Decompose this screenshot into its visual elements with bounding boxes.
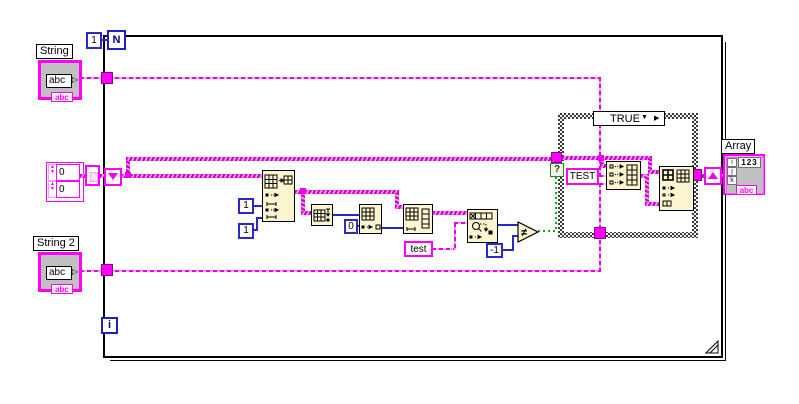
- string1-label[interactable]: String: [36, 44, 73, 59]
- wire-string1-drop[interactable]: [599, 77, 601, 114]
- wire-string2-case[interactable]: [599, 183, 601, 229]
- wire-test-rise[interactable]: [454, 223, 456, 250]
- wire-bool[interactable]: [538, 230, 556, 232]
- index-array-row-icon: [404, 205, 432, 233]
- not-equal-node[interactable]: ≠: [517, 221, 540, 243]
- array-digital-display[interactable]: 123: [738, 157, 761, 168]
- not-equal-glyph: ≠: [521, 227, 527, 239]
- down-triangle-icon: [108, 173, 118, 180]
- case-selector-terminal[interactable]: ?: [550, 163, 564, 177]
- index-array-node[interactable]: [359, 204, 382, 234]
- not-equal-icon: ≠: [517, 221, 540, 243]
- loop-tunnel-string2[interactable]: [101, 264, 113, 276]
- wire-build-drop[interactable]: [645, 174, 649, 205]
- array-index-j[interactable]: j: [727, 167, 737, 176]
- test-string-constant[interactable]: test: [404, 241, 433, 257]
- search-1d-array-icon: [468, 210, 497, 242]
- index-array-row-node[interactable]: [403, 204, 433, 234]
- loop-count-constant[interactable]: 1: [86, 32, 102, 49]
- string2-value-field[interactable]: abc: [46, 266, 72, 280]
- case-selector-value: TRUE: [610, 113, 640, 125]
- loop-iteration-terminal[interactable]: i: [101, 317, 118, 334]
- wire-minus1-rise[interactable]: [512, 236, 514, 251]
- resize-grip-icon[interactable]: [705, 340, 719, 354]
- string1-type-tag: abc: [51, 92, 73, 102]
- string2-label[interactable]: String 2: [33, 236, 79, 251]
- wire-junction[interactable]: [125, 172, 131, 178]
- wire-bool-rise[interactable]: [555, 177, 557, 232]
- string1-value-field[interactable]: abc: [46, 74, 72, 88]
- index-constant-1b[interactable]: 1: [238, 223, 254, 239]
- array-shell-constant[interactable]: [85, 165, 100, 186]
- shift-register-left[interactable]: [104, 168, 122, 186]
- case-tunnel-left[interactable]: [551, 152, 562, 163]
- wire-string1-case[interactable]: [599, 124, 601, 177]
- wire-test[interactable]: [432, 248, 455, 250]
- labview-block-diagram: ? TRUE ▼ ▶ TEST: [0, 0, 799, 404]
- wire-node4-search[interactable]: [433, 211, 468, 215]
- wire-search-out[interactable]: [498, 224, 518, 226]
- replace-array-subset-node[interactable]: [659, 166, 694, 211]
- wire-string2[interactable]: [80, 270, 600, 272]
- build-array-node[interactable]: [606, 161, 641, 190]
- string1-dropdown-icon[interactable]: ▷: [72, 75, 78, 84]
- shift-register-right[interactable]: [704, 167, 722, 185]
- loop-count-terminal[interactable]: N: [107, 30, 126, 50]
- up-triangle-icon: [708, 172, 718, 179]
- wire-string2-rise[interactable]: [599, 240, 601, 272]
- wire-node2-node3[interactable]: [333, 214, 360, 216]
- case-increment-icon[interactable]: ▶: [654, 114, 659, 122]
- wire-build-replace[interactable]: [645, 202, 660, 206]
- wire-array-to-case[interactable]: [126, 157, 556, 161]
- index-constant-0[interactable]: 0: [344, 219, 358, 234]
- array-shell-element: [90, 172, 98, 182]
- loop-tunnel-string1[interactable]: [101, 72, 113, 84]
- wire-junction[interactable]: [598, 155, 604, 161]
- case-string-constant[interactable]: TEST: [566, 168, 599, 185]
- minus-one-constant[interactable]: -1: [486, 243, 503, 258]
- search-1d-array-node[interactable]: [467, 209, 498, 243]
- wire-string1[interactable]: [80, 77, 600, 79]
- wire-over-chain[interactable]: [305, 190, 399, 194]
- array-transform-node[interactable]: [311, 204, 333, 226]
- case-decrement-icon[interactable]: ▼: [641, 114, 648, 121]
- index-array-icon: [360, 205, 381, 233]
- case-selector-label[interactable]: TRUE ▼ ▶: [593, 111, 665, 126]
- array-constant-cell[interactable]: 0: [56, 164, 80, 181]
- array-transform-icon: [312, 205, 332, 225]
- wire-node3-node4[interactable]: [382, 227, 404, 229]
- wire-case-array[interactable]: [562, 156, 652, 160]
- array-index-i[interactable]: i: [727, 158, 737, 167]
- array-indicator-label[interactable]: Array: [721, 139, 755, 154]
- wire-array-to-insert[interactable]: [126, 174, 262, 178]
- array-constant-cell[interactable]: 0: [56, 181, 80, 198]
- insert-into-array-icon: [263, 171, 294, 221]
- wire-junction[interactable]: [300, 188, 306, 194]
- array-type-tag: abc: [736, 185, 757, 195]
- string2-type-tag: abc: [51, 284, 73, 294]
- array-index-k[interactable]: k: [727, 176, 737, 185]
- insert-into-array-node[interactable]: [262, 170, 295, 222]
- index-constant-1a[interactable]: 1: [238, 198, 254, 214]
- replace-array-subset-icon: [660, 167, 693, 210]
- wire-test-in[interactable]: [454, 222, 468, 224]
- case-tunnel-bottom[interactable]: [594, 227, 606, 239]
- build-array-icon: [607, 162, 640, 189]
- string2-dropdown-icon[interactable]: ▷: [72, 267, 78, 276]
- wire-1b-rise[interactable]: [256, 218, 258, 231]
